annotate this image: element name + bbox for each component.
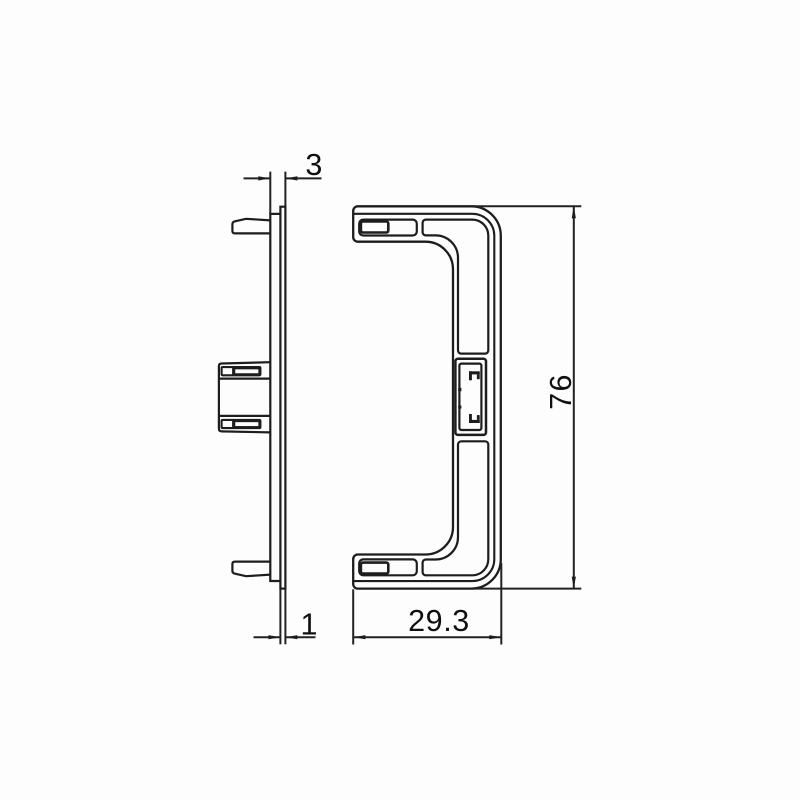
svg-text:76: 76 [544, 373, 578, 410]
svg-text:1: 1 [301, 607, 318, 641]
svg-text:3: 3 [305, 148, 322, 182]
svg-text:29.3: 29.3 [408, 604, 470, 638]
